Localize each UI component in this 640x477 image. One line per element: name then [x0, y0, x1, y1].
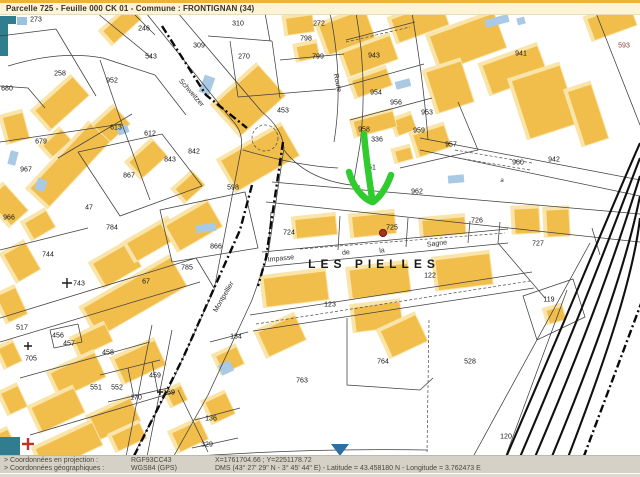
- projection-coordinates: X=1761704.66 ; Y=2251178.72: [215, 457, 312, 465]
- status-row-geographic: > Coordonnées géographiques : WGS84 (GPS…: [0, 465, 640, 473]
- status-row-projection: > Coordonnées en projection : RGF93CC43 …: [0, 457, 640, 465]
- status-bar-footer-strip: [0, 473, 640, 477]
- water-feature: [0, 437, 20, 455]
- page-title: Parcelle 725 - Feuille 000 CK 01 - Commu…: [6, 4, 254, 13]
- water-feature: [17, 17, 27, 25]
- geographic-coordinates: DMS (43° 27' 29" N - 3° 45' 44" E) - Lat…: [215, 465, 481, 473]
- cadastral-map-canvas[interactable]: [0, 0, 640, 477]
- status-bar: > Coordonnées en projection : RGF93CC43 …: [0, 455, 640, 477]
- pool: [448, 174, 465, 183]
- cadastre-map-viewer: 2732465432589526803103092702727987994536…: [0, 0, 640, 477]
- projection-system: RGF93CC43: [131, 457, 171, 465]
- map-title-bar: Parcelle 725 - Feuille 000 CK 01 - Commu…: [0, 3, 640, 15]
- geographic-row-label: > Coordonnées géographiques :: [4, 465, 104, 473]
- projection-row-label: > Coordonnées en projection :: [4, 457, 98, 465]
- geographic-system: WGS84 (GPS): [131, 465, 177, 473]
